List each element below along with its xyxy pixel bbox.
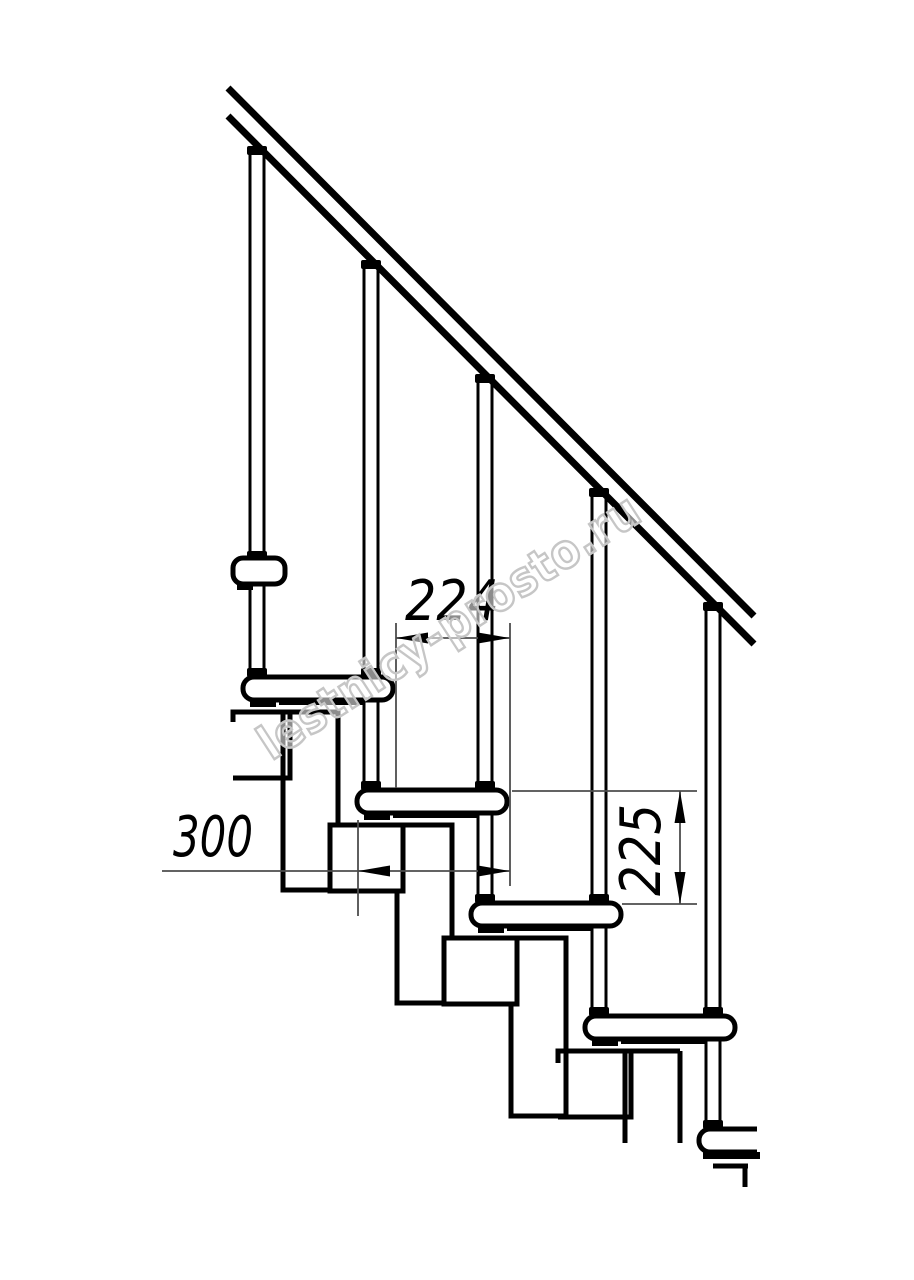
stringer-block-3 bbox=[444, 938, 517, 1004]
dimension-label-225: 225 bbox=[609, 804, 674, 896]
tread-5-partial bbox=[699, 1129, 849, 1152]
cap bbox=[703, 1120, 723, 1129]
pad bbox=[507, 926, 591, 931]
pad bbox=[364, 813, 390, 820]
pad bbox=[592, 1039, 618, 1046]
cap bbox=[703, 1007, 723, 1016]
cap bbox=[589, 894, 609, 903]
pad bbox=[703, 1152, 760, 1159]
baluster-4 bbox=[592, 493, 606, 1016]
staircase-technical-drawing: 224 300 225 lestnicy-prosto.ru bbox=[0, 0, 914, 1280]
pad bbox=[393, 813, 477, 818]
cap bbox=[703, 602, 723, 611]
cap bbox=[475, 894, 495, 903]
arrowhead-up bbox=[675, 791, 686, 823]
pad bbox=[250, 700, 276, 707]
cap bbox=[475, 374, 495, 383]
cap bbox=[589, 1007, 609, 1016]
dimension-label-300: 300 bbox=[173, 805, 253, 870]
pad bbox=[237, 584, 253, 590]
baluster-1 bbox=[250, 151, 264, 677]
cap bbox=[247, 146, 267, 155]
arrowhead-right bbox=[478, 866, 510, 877]
tread-3 bbox=[471, 903, 621, 926]
arrowhead-down bbox=[675, 872, 686, 904]
tread-2 bbox=[357, 790, 507, 813]
cap bbox=[247, 668, 267, 677]
tread-top-partial bbox=[233, 558, 285, 584]
stringer-block-4 bbox=[558, 1051, 631, 1117]
drawing-surface: 224 300 225 lestnicy-prosto.ru bbox=[0, 0, 914, 1280]
cap bbox=[361, 260, 381, 269]
baluster-5 bbox=[706, 607, 720, 1129]
cap bbox=[247, 551, 267, 560]
cap bbox=[475, 781, 495, 790]
tread-4 bbox=[585, 1016, 735, 1039]
pad bbox=[478, 926, 504, 933]
stringer-block-5-partial bbox=[713, 1166, 748, 1187]
stringer-block-2 bbox=[330, 825, 403, 891]
cap bbox=[361, 781, 381, 790]
pad bbox=[621, 1039, 705, 1044]
